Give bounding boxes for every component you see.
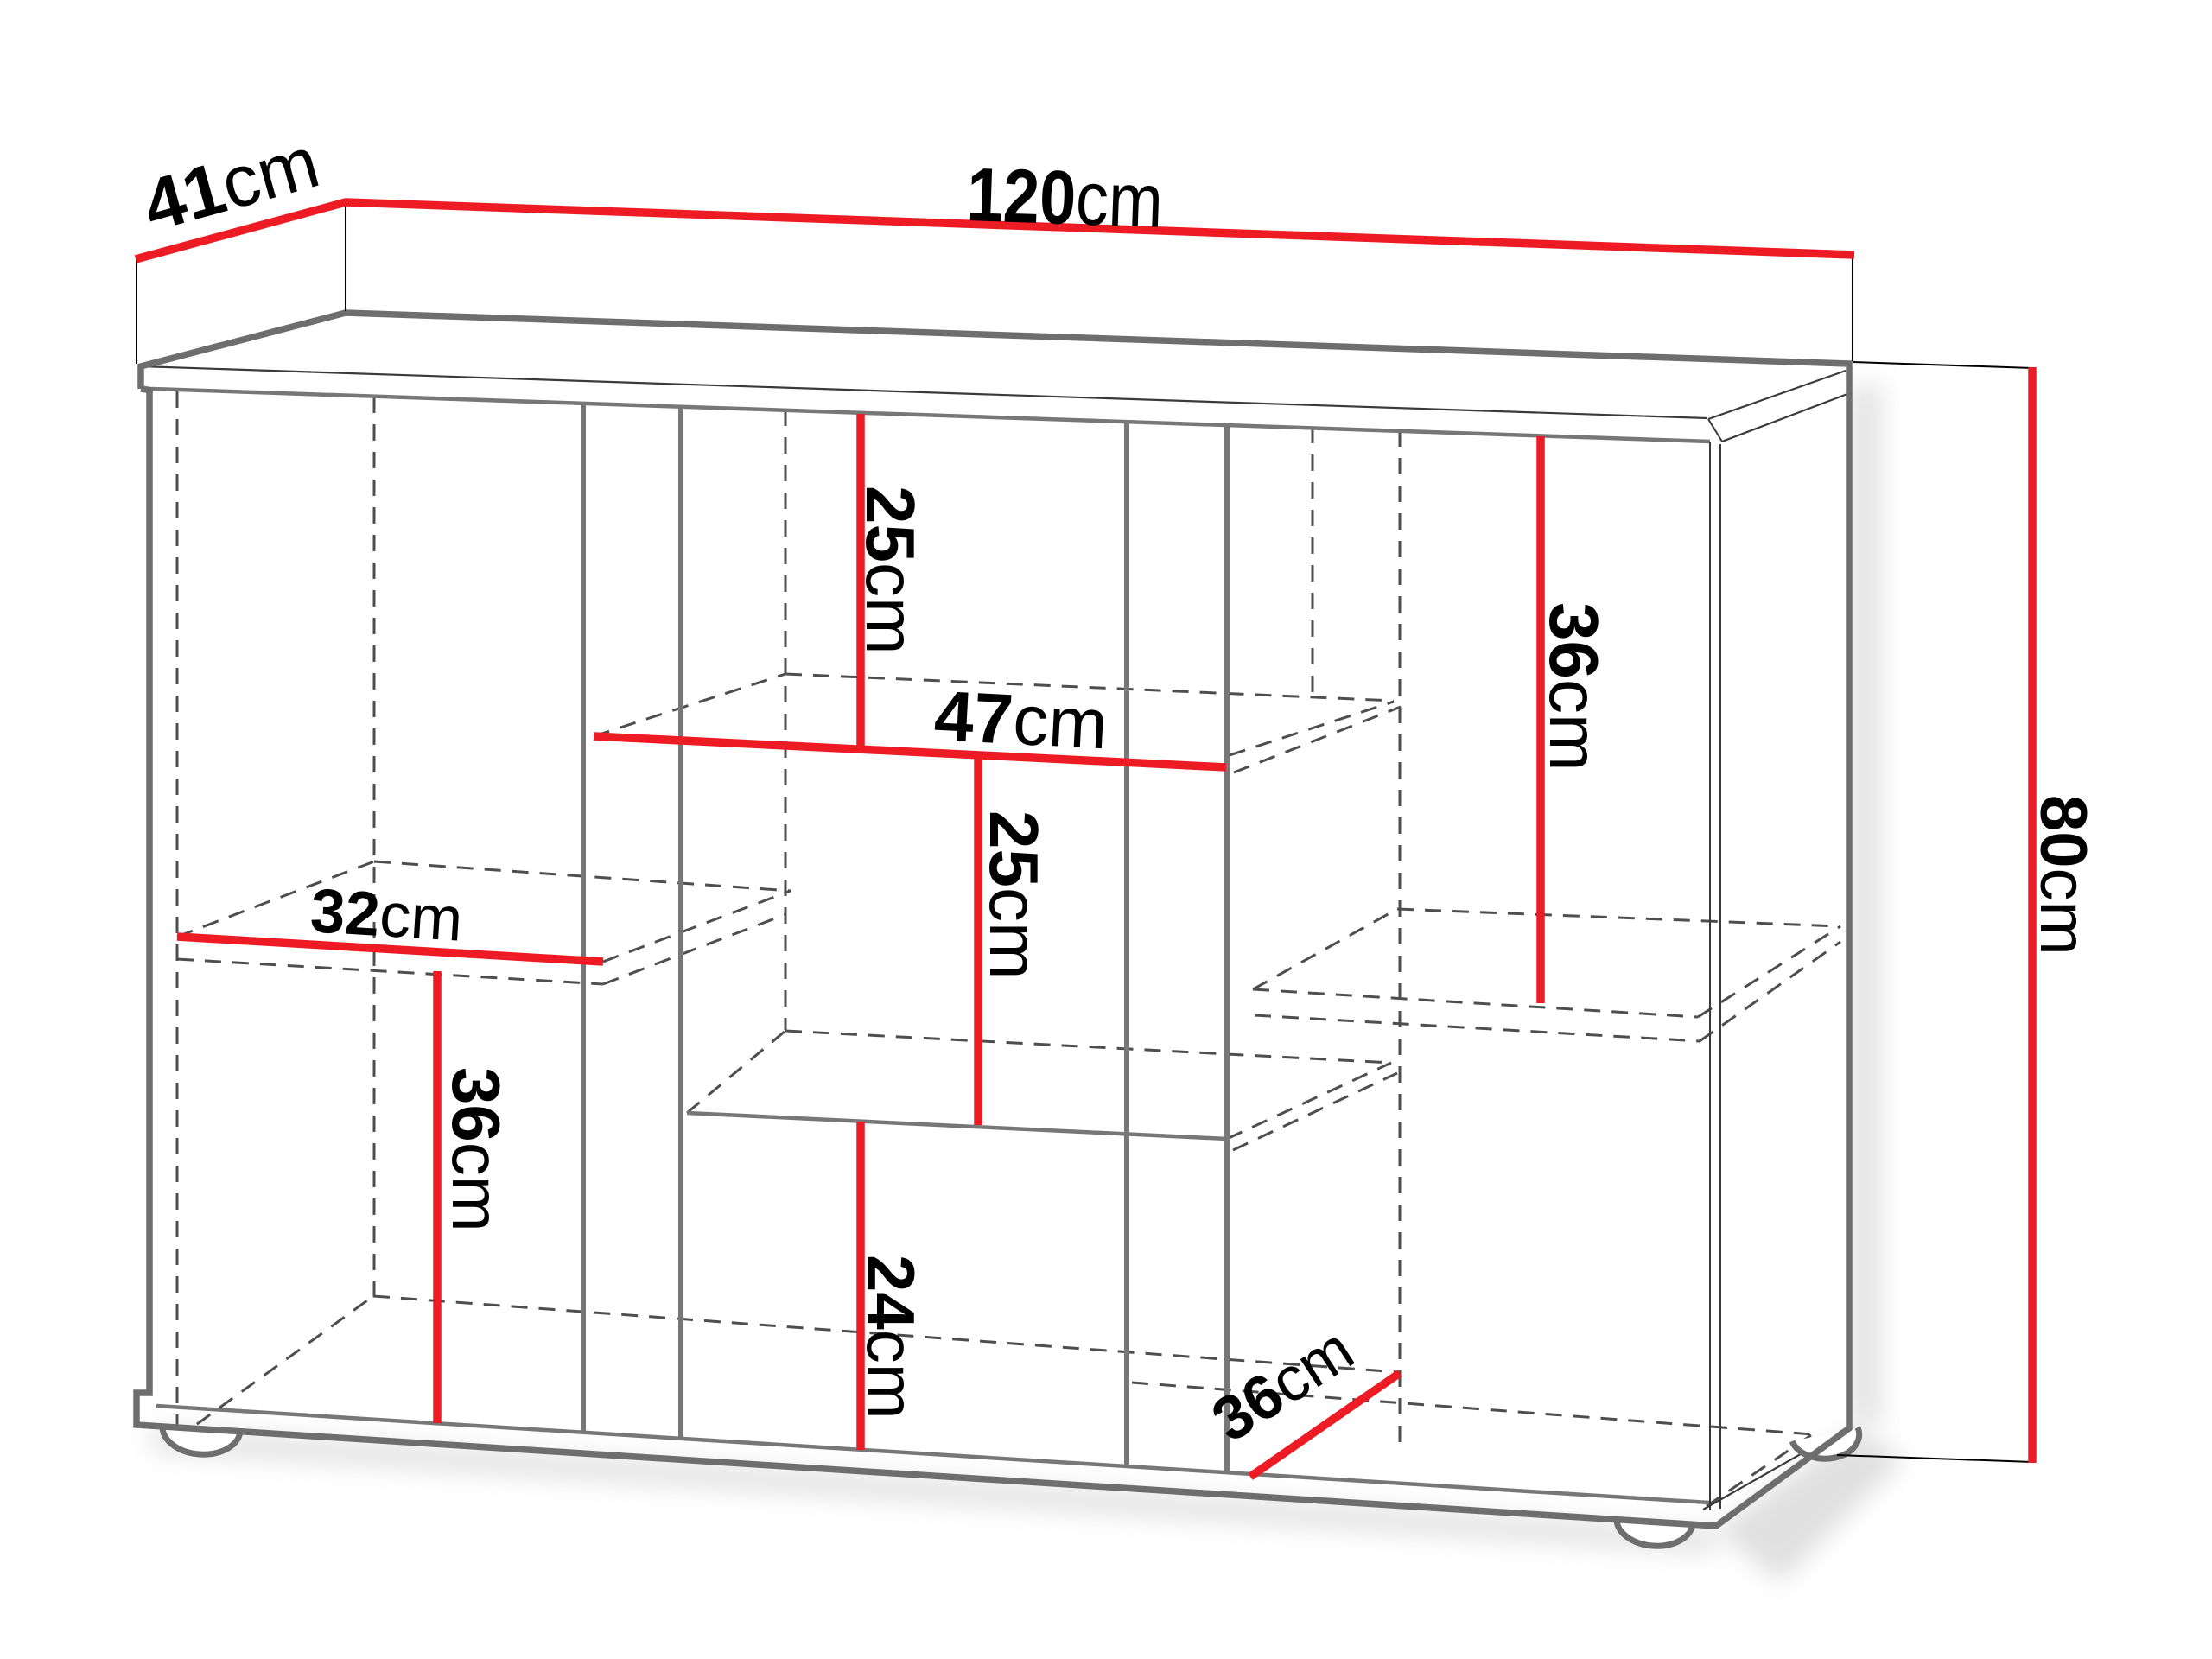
svg-text:25cm: 25cm <box>852 486 929 655</box>
svg-text:24cm: 24cm <box>853 1255 929 1420</box>
svg-text:36cm: 36cm <box>1535 602 1612 772</box>
svg-text:32cm: 32cm <box>308 876 465 955</box>
svg-text:25cm: 25cm <box>976 810 1052 980</box>
svg-text:120cm: 120cm <box>965 151 1164 244</box>
svg-text:36cm: 36cm <box>438 1067 514 1232</box>
svg-text:47cm: 47cm <box>932 677 1109 764</box>
svg-text:80cm: 80cm <box>2026 795 2100 956</box>
